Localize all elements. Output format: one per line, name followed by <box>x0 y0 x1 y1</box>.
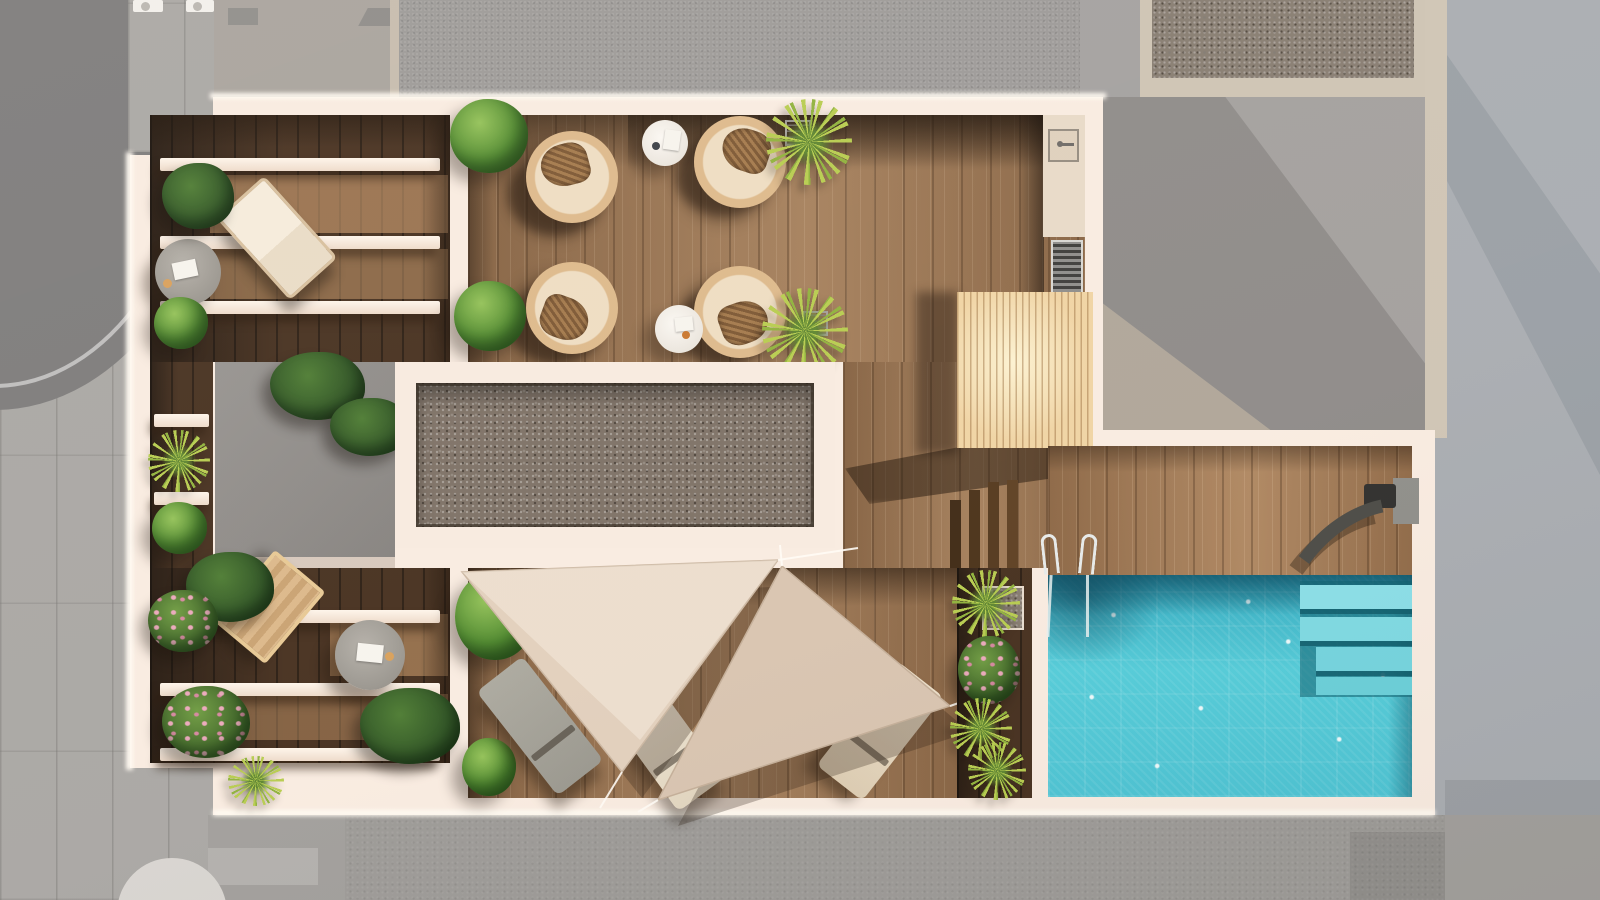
pergola-south <box>150 568 450 763</box>
rattan-chair-1 <box>526 131 618 223</box>
street-dark-patch <box>1350 832 1445 900</box>
shade-sails <box>430 530 1030 830</box>
roof-vent-1 <box>133 0 163 12</box>
flowering-plant <box>958 636 1020 704</box>
vent-circle <box>193 2 202 11</box>
pool-step <box>1316 677 1412 695</box>
street-marking <box>208 848 318 885</box>
kitchen-counter <box>1043 115 1085 237</box>
bush <box>450 99 528 173</box>
shower-arm <box>1270 468 1430 588</box>
counter-shadow <box>1018 115 1044 305</box>
bush <box>152 502 207 554</box>
palm-plant <box>968 742 1026 800</box>
flowering-plant <box>148 590 218 652</box>
sail-rope <box>778 548 858 560</box>
sail-rope <box>780 545 782 566</box>
platform-shadow <box>916 292 958 454</box>
cup <box>682 331 690 339</box>
roof-box-1 <box>228 8 258 25</box>
grey-table-south <box>335 620 405 690</box>
gravel-roof <box>1152 0 1414 78</box>
rattan-chair-3 <box>526 262 618 354</box>
pool-water <box>1048 575 1412 797</box>
pool-step <box>1300 585 1412 609</box>
east-parapet <box>1425 0 1447 438</box>
plant <box>162 163 234 229</box>
coffee-table-1 <box>642 120 688 166</box>
sail-rope <box>600 772 622 808</box>
chair-weave <box>535 290 594 346</box>
palm-plant <box>228 756 284 806</box>
rooftop-terrace-render <box>0 0 1600 900</box>
magazine <box>674 316 693 332</box>
wall-glow-west <box>126 152 133 770</box>
plant <box>154 297 208 349</box>
pool-step <box>1316 647 1412 671</box>
pergola-beam <box>154 414 209 427</box>
east-shadow <box>1447 55 1600 475</box>
roof-vent-2 <box>186 0 214 12</box>
coffee-table-2 <box>655 305 703 353</box>
magazine <box>171 259 198 281</box>
ladder-rail <box>1086 575 1089 637</box>
croissant <box>385 652 394 661</box>
vent-circle <box>141 2 150 11</box>
pergola-north <box>150 115 450 362</box>
magazine <box>356 643 384 664</box>
palm-plant <box>952 570 1020 638</box>
palm-plant <box>148 430 210 492</box>
palm-plant <box>766 99 852 185</box>
neighbor-roof-top <box>390 0 1080 97</box>
chair-weave <box>536 138 593 191</box>
croissant <box>163 279 172 288</box>
building-east <box>1425 0 1600 900</box>
cup <box>652 142 660 150</box>
pool-step <box>1300 617 1412 641</box>
flowering-plant <box>162 686 250 758</box>
neighbor-roof-east <box>1103 97 1425 430</box>
sail-rope <box>638 800 658 812</box>
magazine <box>663 129 682 151</box>
grey-table-north <box>155 239 221 305</box>
wall-glow-north <box>210 93 1106 99</box>
skylight-gravel <box>395 362 835 548</box>
wall-shadow <box>150 115 450 147</box>
timber-platform <box>957 292 1093 448</box>
vent-grate <box>1051 240 1083 297</box>
faucet-base <box>1057 141 1063 147</box>
ladder-shadow <box>1048 575 1163 665</box>
bush <box>454 281 526 351</box>
